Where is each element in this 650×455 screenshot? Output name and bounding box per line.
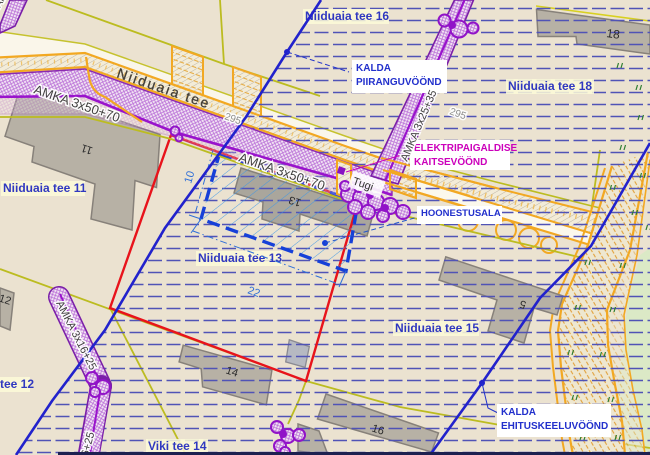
svg-text:Niiduaia tee 11: Niiduaia tee 11 — [3, 181, 87, 195]
svg-text:18: 18 — [606, 26, 621, 42]
svg-text:ELEKTRIPAIGALDISE: ELEKTRIPAIGALDISE — [414, 143, 517, 154]
svg-text:PIIRANGUVÖÖND: PIIRANGUVÖÖND — [356, 75, 442, 88]
svg-text:Niiduaia tee 13: Niiduaia tee 13 — [198, 251, 282, 265]
svg-text:EHITUSKEELUVÖÖND: EHITUSKEELUVÖÖND — [501, 419, 608, 432]
svg-text:KALDA: KALDA — [356, 63, 391, 74]
svg-text:Niiduaia tee 15: Niiduaia tee 15 — [395, 321, 479, 335]
svg-text:Niiduaia tee 18: Niiduaia tee 18 — [508, 79, 592, 93]
svg-text:KALDA: KALDA — [501, 407, 536, 418]
svg-text:KAITSEVÖÖND: KAITSEVÖÖND — [414, 155, 487, 168]
svg-text:tee 12: tee 12 — [0, 377, 34, 391]
svg-text:HOONESTUSALA: HOONESTUSALA — [421, 208, 501, 219]
svg-text:Viki tee 14: Viki tee 14 — [148, 439, 207, 453]
svg-text:Niiduaia tee 16: Niiduaia tee 16 — [305, 9, 389, 23]
